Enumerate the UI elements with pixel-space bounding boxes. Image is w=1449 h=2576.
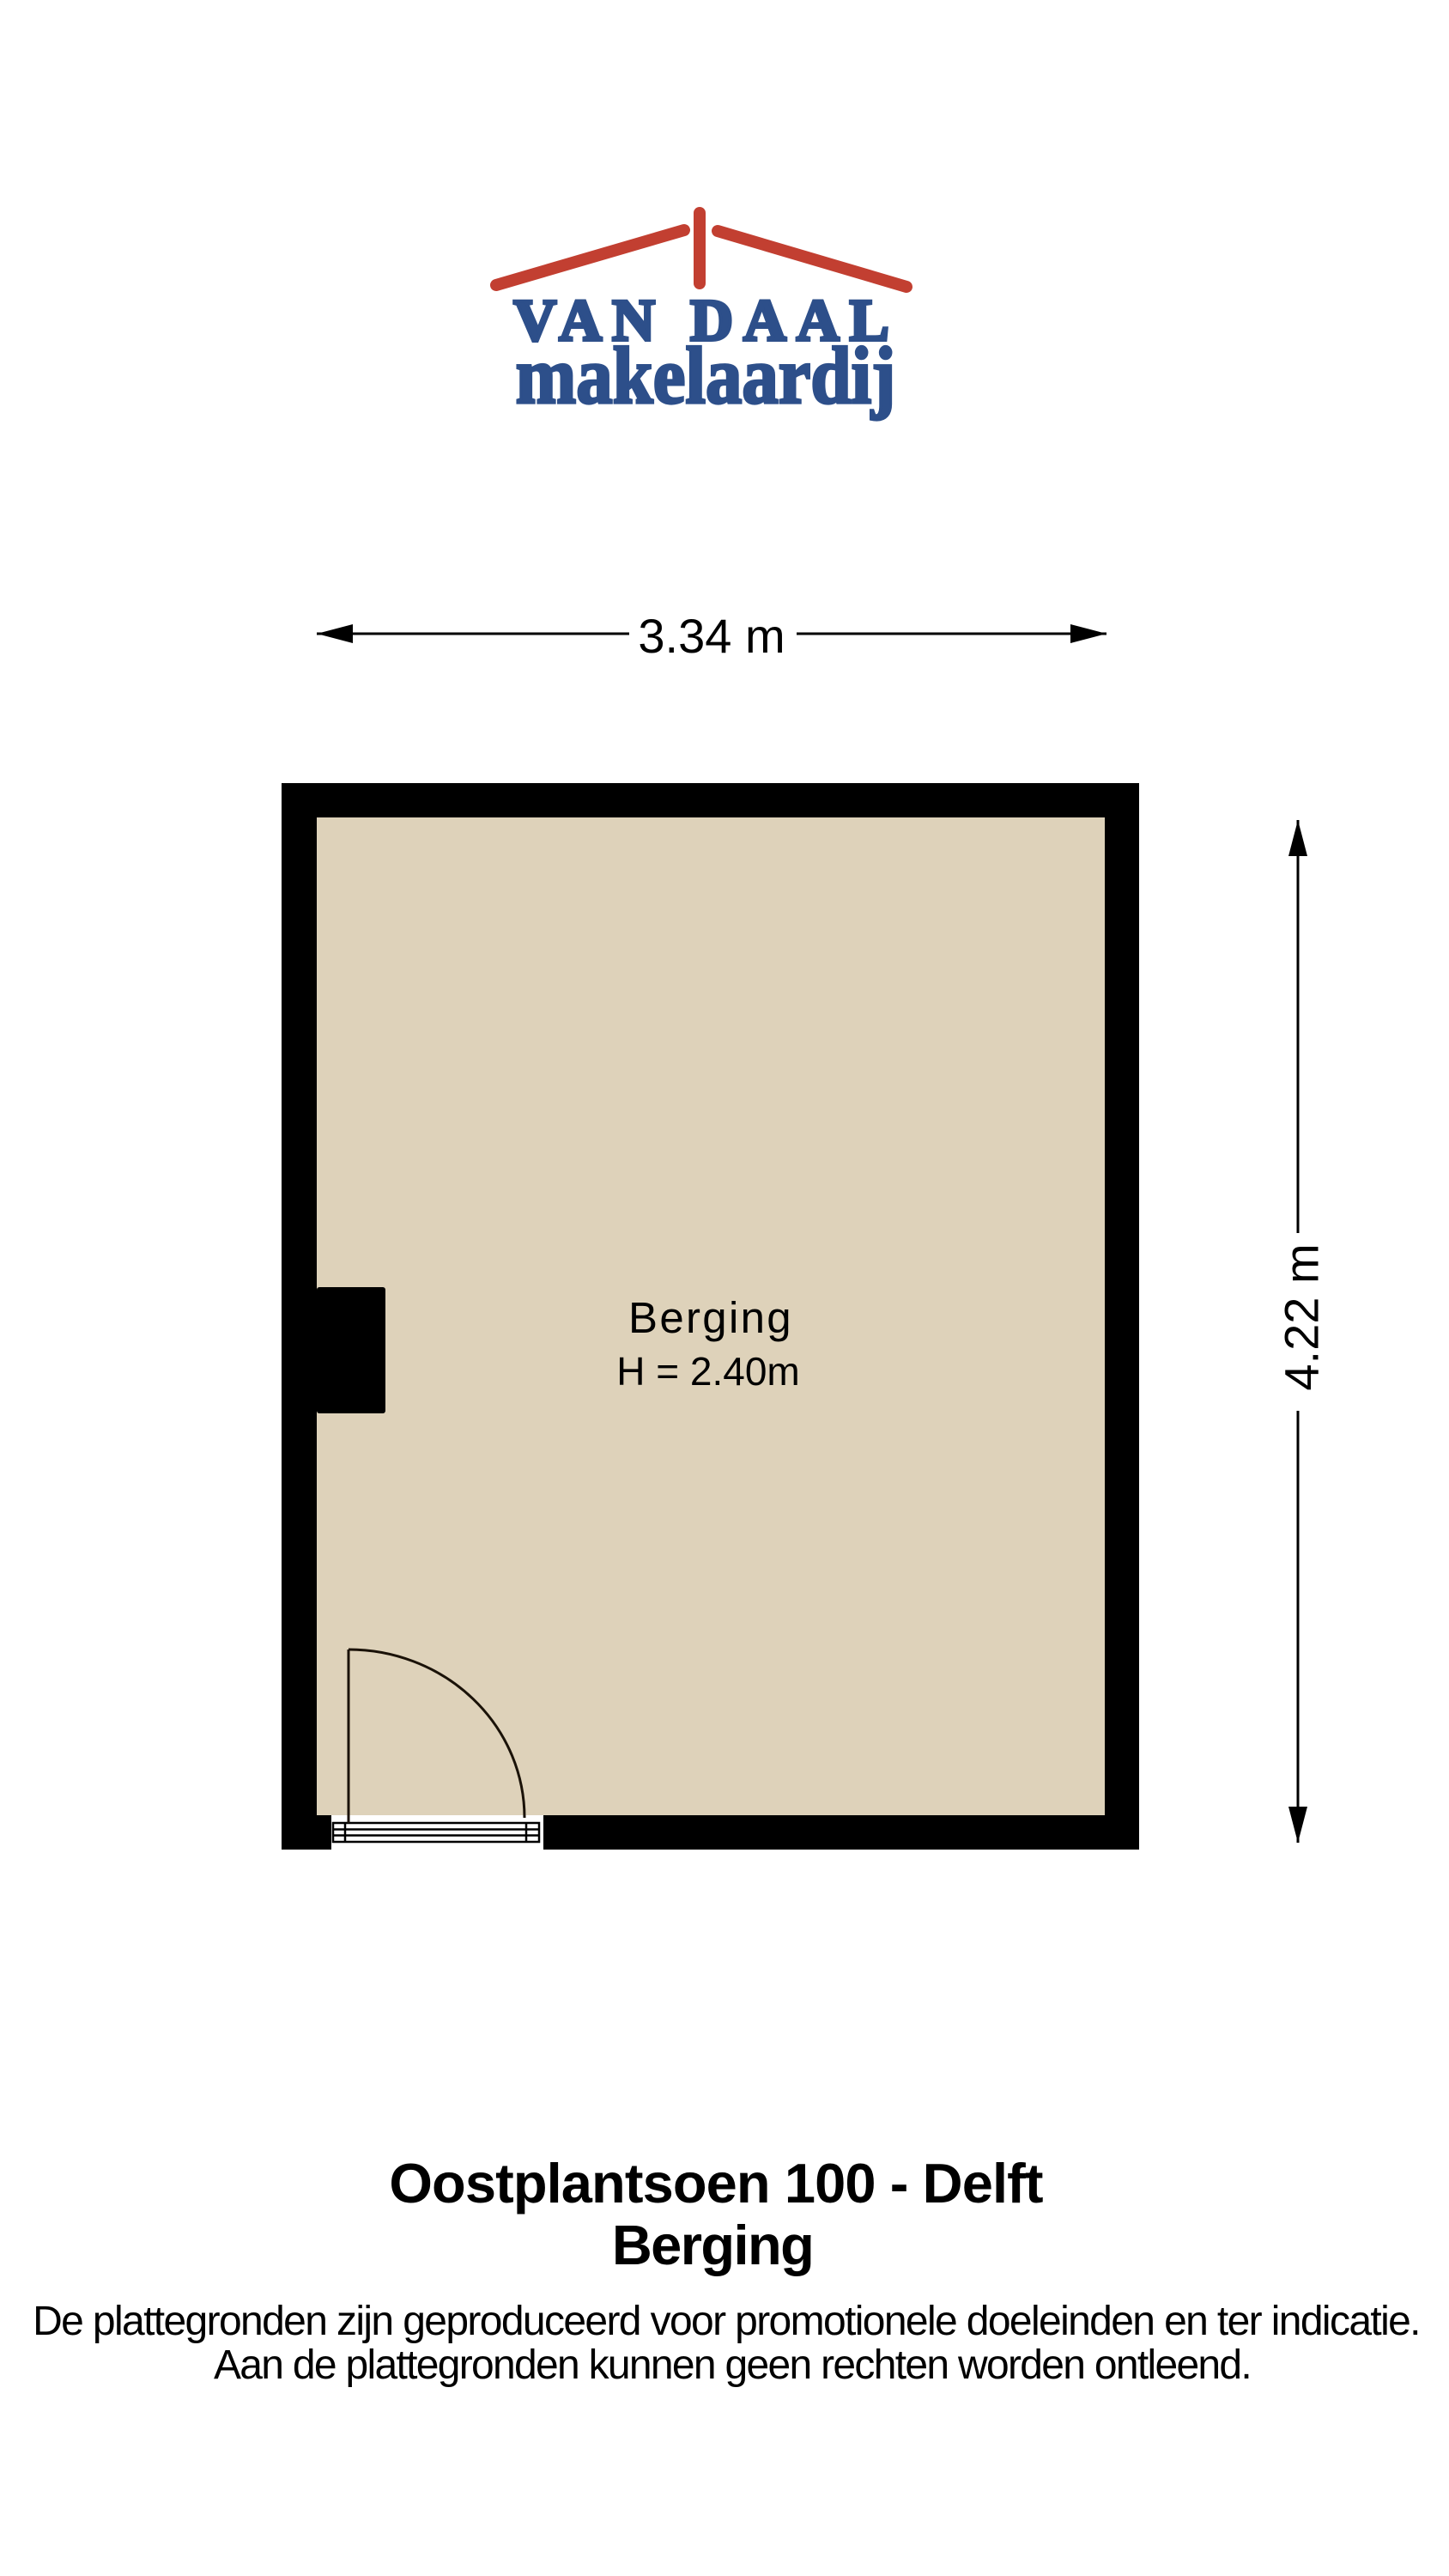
svg-text:3.34 m: 3.34 m [638,609,785,663]
svg-text:4.22 m: 4.22 m [1275,1243,1329,1390]
